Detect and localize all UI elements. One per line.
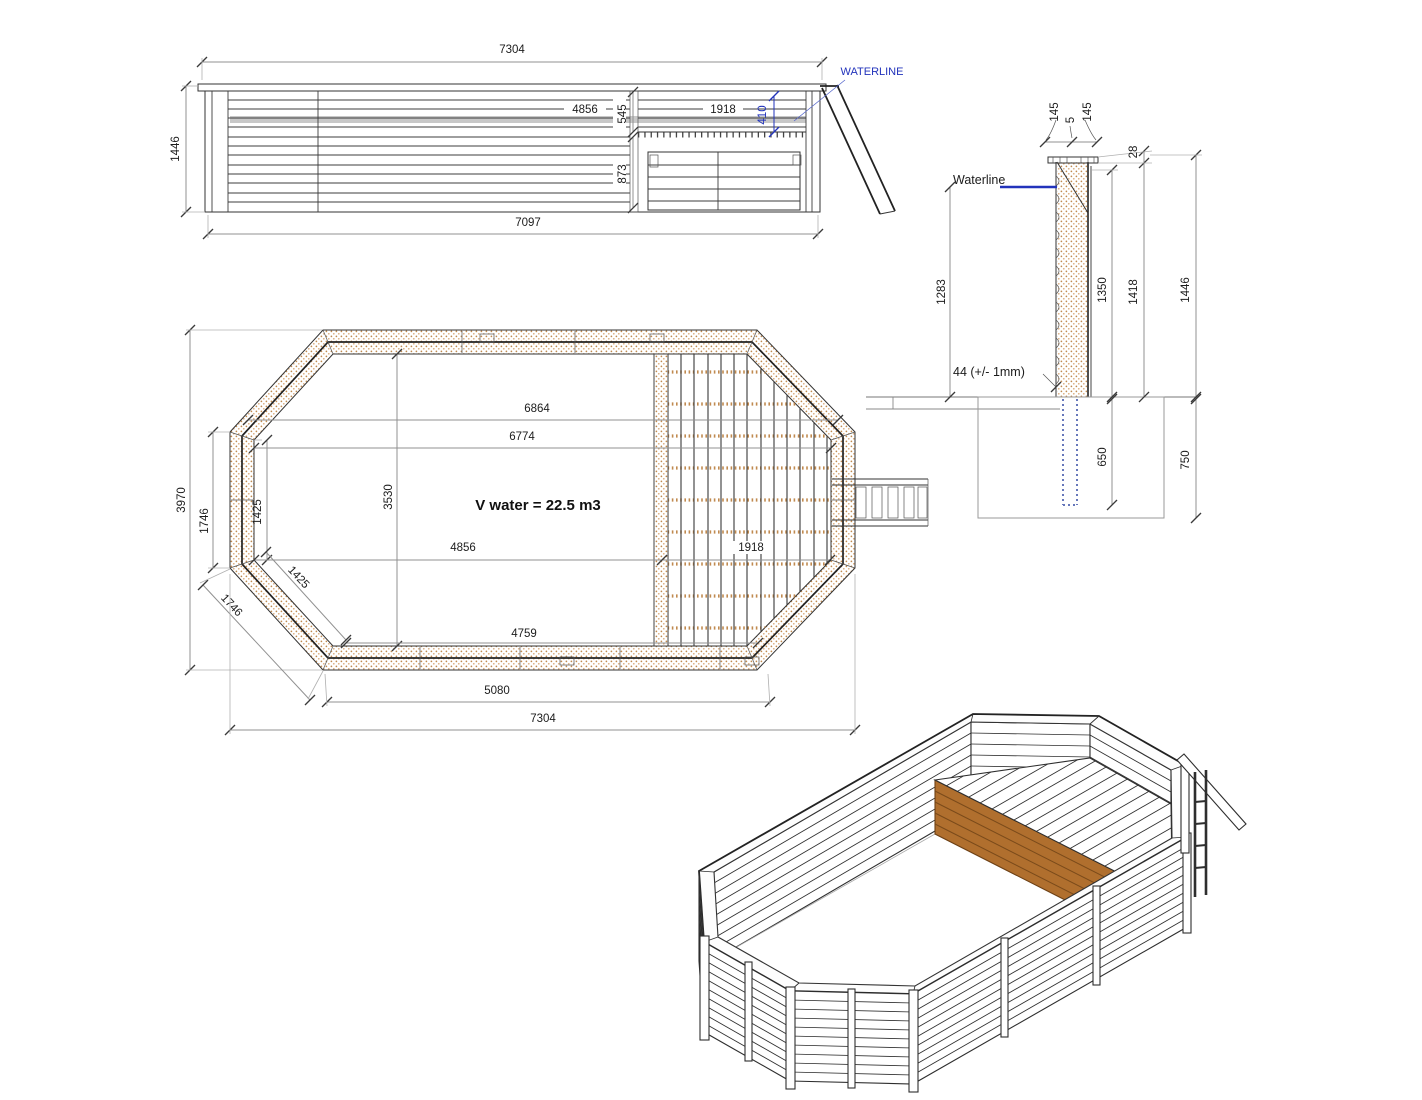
dim-cap-thickness: 28 xyxy=(1128,146,1140,159)
dim-cap-front: 145 xyxy=(1049,102,1061,121)
plank-thickness-note: 44 (+/- 1mm) xyxy=(953,365,1025,379)
side-elevation-view: 7304 1446 4856 545 873 1918 410 7097 xyxy=(170,44,903,239)
plan-deck-edge-beam xyxy=(654,354,668,646)
dim-deck-height: 873 xyxy=(617,164,629,183)
elevation-waterline-band xyxy=(230,116,806,123)
pool-technical-drawing: 7304 1446 4856 545 873 1918 410 7097 xyxy=(0,0,1422,1100)
dim-panel-left: 1746 xyxy=(199,508,211,534)
dim-overall-height: 1446 xyxy=(170,136,182,162)
section-buried-post xyxy=(1063,399,1077,505)
elevation-bench xyxy=(648,152,801,210)
elevation-deck-divider xyxy=(630,91,638,212)
plan-view: 3970 1746 1425 1425 1746 6864 6774 xyxy=(176,325,928,735)
isometric-view xyxy=(699,648,1378,1092)
section-ground xyxy=(866,397,1198,518)
elevation-top-cap xyxy=(198,84,826,91)
dim-1350: 1350 xyxy=(1097,277,1109,303)
dim-bottom-inner: 4759 xyxy=(511,628,537,640)
section-cap-dimensions: 145 5 145 xyxy=(1040,102,1102,147)
dim-waterline-offset: 410 xyxy=(757,105,769,124)
dim-cap-gap: 5 xyxy=(1065,117,1077,123)
dim-inner-width: 3530 xyxy=(383,484,395,510)
elevation-ladder xyxy=(820,85,895,214)
dim-1446: 1446 xyxy=(1180,277,1192,303)
section-wall-core xyxy=(1057,162,1087,397)
dim-floor-length: 4856 xyxy=(450,542,476,554)
dim-plan-height: 3970 xyxy=(176,487,188,513)
dim-inner-left: 1425 xyxy=(252,499,264,525)
dim-750: 750 xyxy=(1180,450,1192,469)
wall-section-view: Waterline 145 5 145 28 1 xyxy=(866,102,1202,523)
dim-deck-length: 1918 xyxy=(738,542,764,554)
dim-inner-6774: 6774 xyxy=(509,431,535,443)
dim-650: 650 xyxy=(1097,447,1109,466)
dim-cap-back: 145 xyxy=(1082,102,1094,121)
dim-deck-width: 1918 xyxy=(710,104,736,116)
section-foundation-box xyxy=(978,397,1164,518)
dim-plank-length: 4856 xyxy=(572,104,598,116)
dim-1283: 1283 xyxy=(936,279,948,305)
dim-base-width: 7097 xyxy=(515,217,541,229)
waterline-callout-label: WATERLINE xyxy=(841,66,904,78)
volume-label: V water = 22.5 m3 xyxy=(475,497,601,514)
dim-top-to-deck: 545 xyxy=(617,104,629,123)
dim-overall-width: 7304 xyxy=(499,44,525,56)
dim-1418: 1418 xyxy=(1128,279,1140,305)
dim-bottom-panel: 5080 xyxy=(484,685,510,697)
dim-inner-6864: 6864 xyxy=(524,403,550,415)
dim-plan-length: 7304 xyxy=(530,713,556,725)
section-waterline-label: Waterline xyxy=(953,173,1005,187)
